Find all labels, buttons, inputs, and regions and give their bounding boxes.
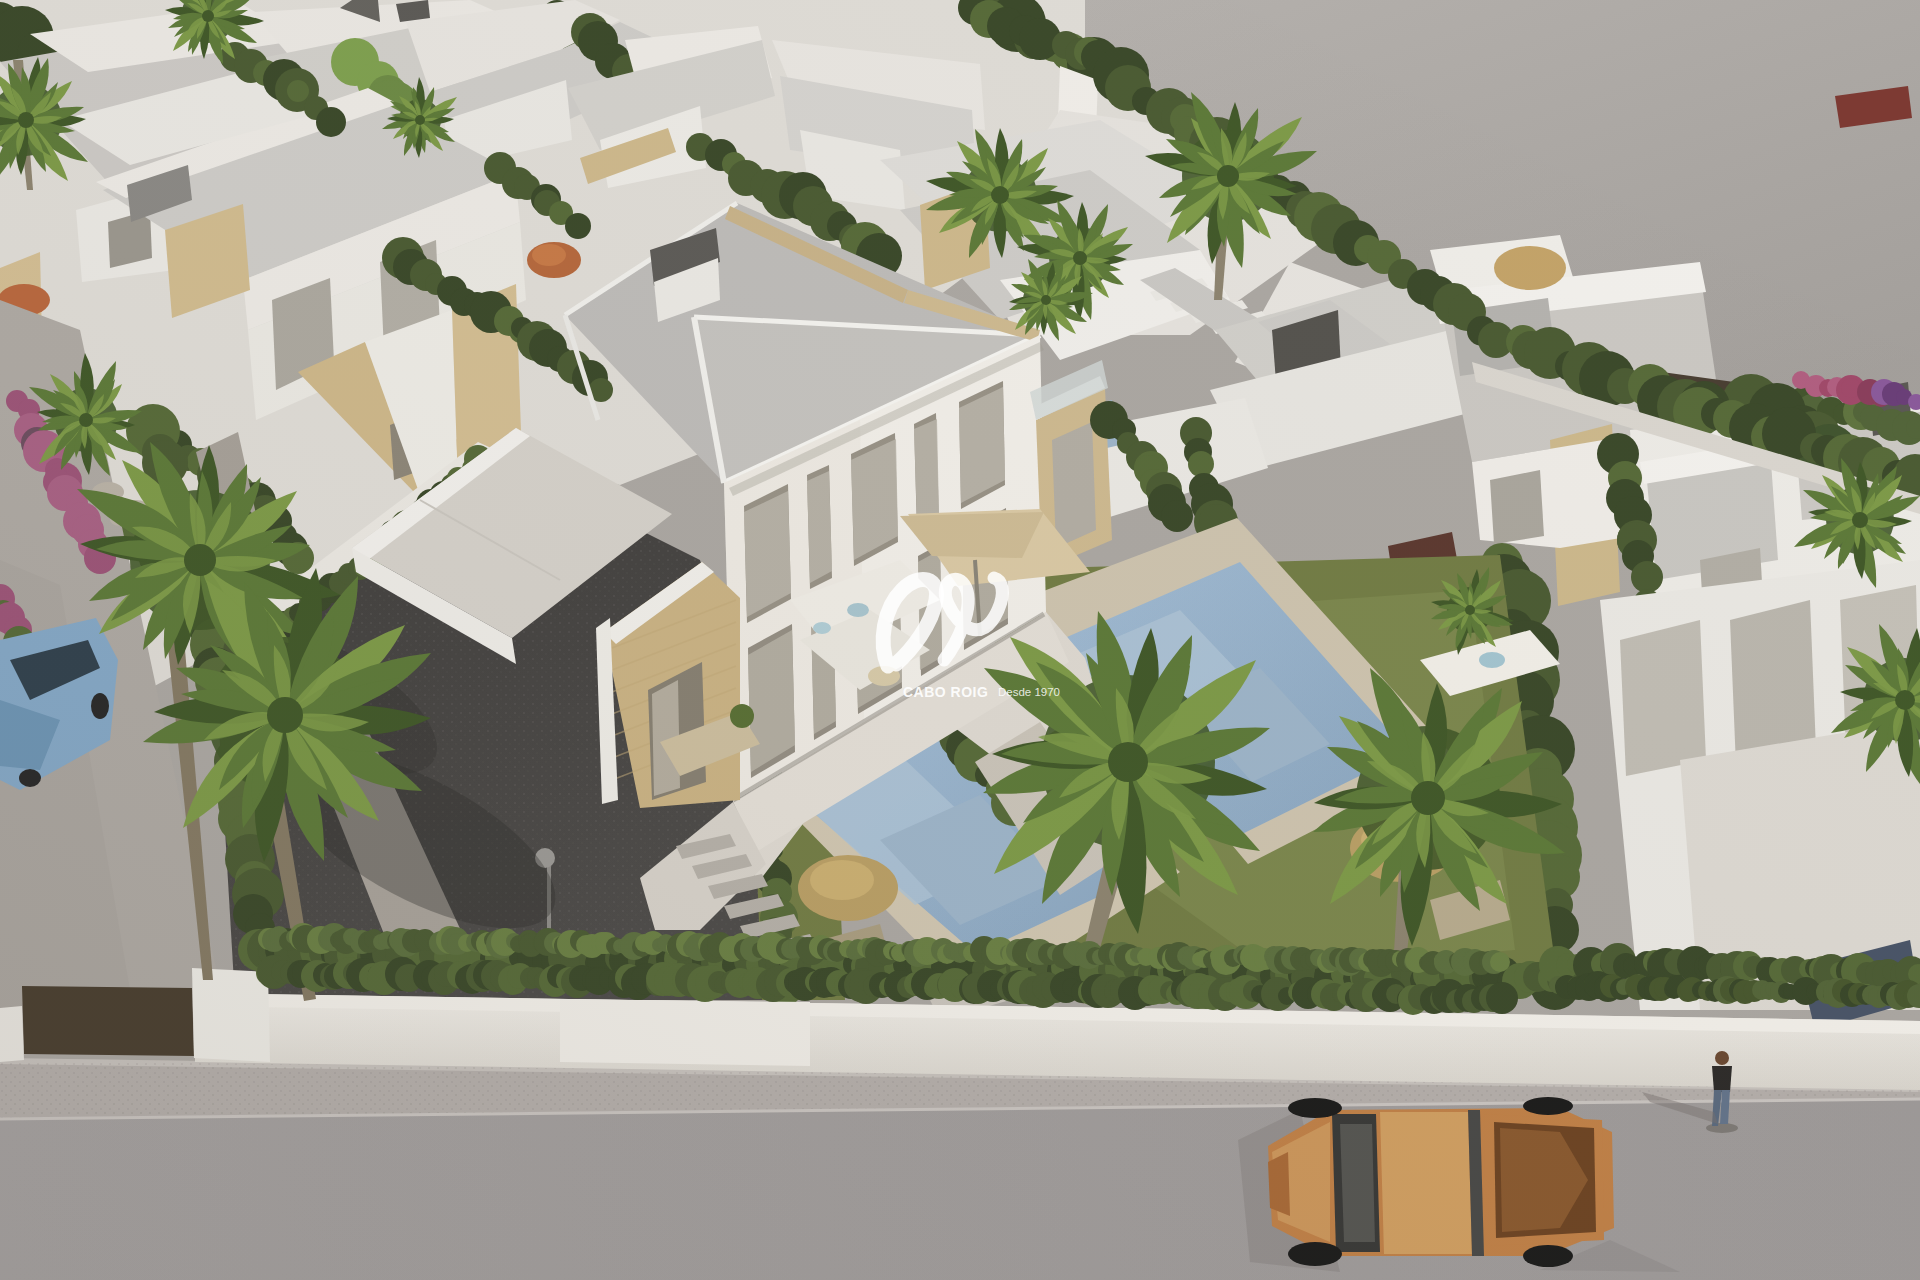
svg-text:CABO ROIG: CABO ROIG (903, 684, 988, 700)
svg-text:Desde 1970: Desde 1970 (998, 686, 1060, 698)
